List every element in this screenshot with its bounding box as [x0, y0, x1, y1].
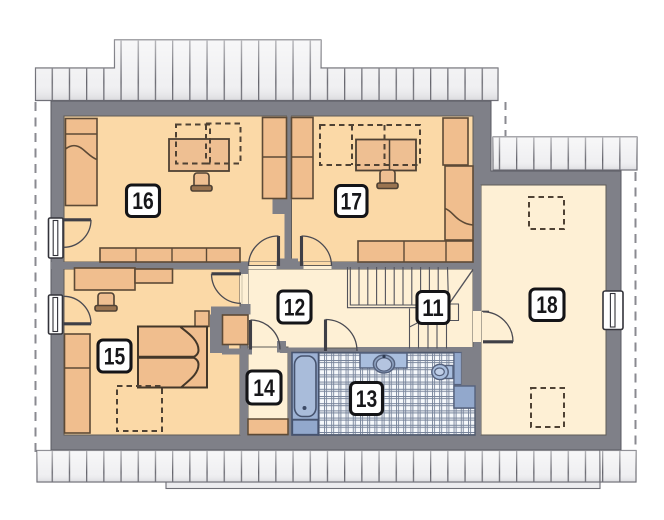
svg-text:15: 15: [104, 343, 126, 370]
svg-text:13: 13: [356, 386, 378, 413]
svg-text:17: 17: [341, 188, 363, 215]
svg-text:16: 16: [132, 188, 154, 215]
svg-text:12: 12: [284, 294, 306, 321]
svg-text:18: 18: [536, 292, 558, 319]
svg-text:11: 11: [422, 295, 444, 322]
svg-text:14: 14: [253, 375, 275, 402]
